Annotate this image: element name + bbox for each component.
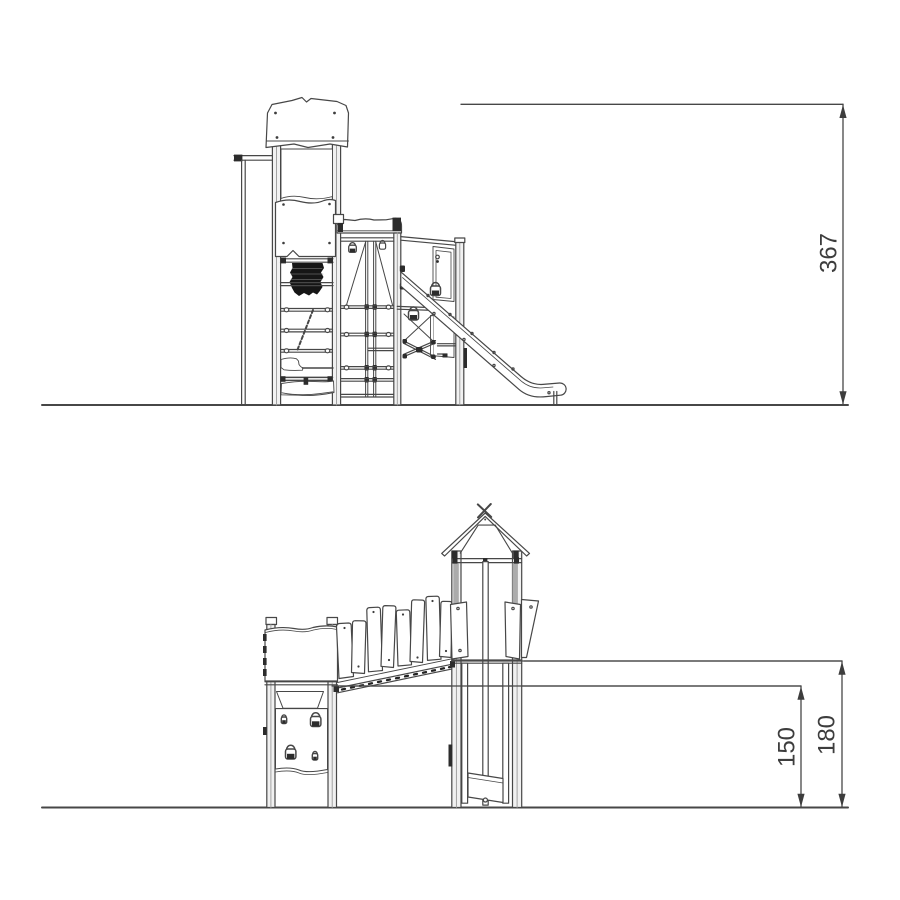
svg-text:150: 150 [774, 727, 801, 767]
svg-text:367: 367 [816, 233, 843, 273]
svg-text:180: 180 [814, 715, 841, 755]
